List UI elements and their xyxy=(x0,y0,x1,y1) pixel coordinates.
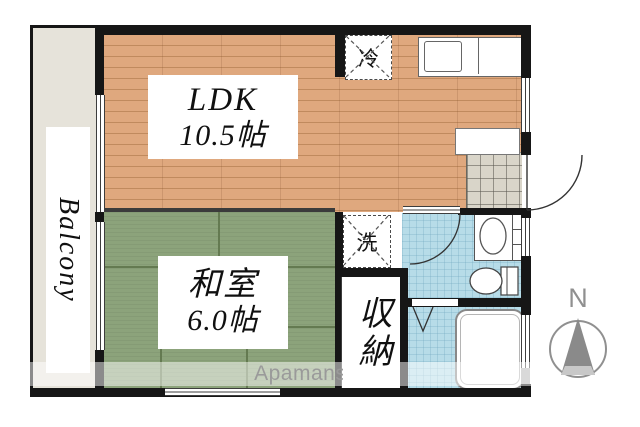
outer-wall-top xyxy=(95,25,531,35)
ldk-label-box: LDK 10.5帖 xyxy=(148,75,298,159)
balcony-label: Balcony xyxy=(52,197,84,303)
outer-wall-bottom xyxy=(30,388,531,397)
wash-basin-cabinet xyxy=(474,214,514,261)
floor-plan: 冷 洗 xyxy=(0,0,640,427)
ldk-room-size: 10.5帖 xyxy=(179,119,267,153)
bathroom-side-window xyxy=(521,315,530,368)
wall-left-seg xyxy=(95,212,104,222)
kitchen-sink xyxy=(424,41,462,72)
washitsu-bottom-window xyxy=(165,388,280,396)
balcony-window-ldk xyxy=(96,95,105,212)
shoe-cabinet xyxy=(455,128,520,155)
balcony-outer-wall-left xyxy=(30,25,33,391)
refrigerator-space: 冷 xyxy=(345,35,392,80)
kitchen-counter-divider xyxy=(478,38,479,74)
balcony-outer-wall-top xyxy=(30,25,98,28)
washitsu-room-size: 6.0帖 xyxy=(187,304,259,338)
refrigerator-label: 冷 xyxy=(358,43,379,73)
wall-right-seg xyxy=(521,208,531,218)
compass-needle-icon xyxy=(561,318,595,375)
storage-label-wrap: 収納 xyxy=(343,277,400,388)
bath-door-opening xyxy=(412,299,458,306)
washroom-side-window xyxy=(521,218,530,256)
ldk-room-name: LDK xyxy=(188,82,258,119)
wall-left-seg xyxy=(95,25,104,95)
washroom-top-wall xyxy=(458,208,521,215)
kitchen-side-window xyxy=(521,78,530,132)
washitsu-room-name: 和室 xyxy=(188,267,258,304)
wall-right-seg xyxy=(521,256,531,315)
compass-circle-icon xyxy=(550,321,606,377)
wall-right-seg xyxy=(521,132,531,155)
refrigerator-niche-wall xyxy=(335,35,345,77)
washitsu-label-box: 和室 6.0帖 xyxy=(158,256,288,349)
balcony-label-box: Balcony xyxy=(46,127,90,373)
washroom-door-opening xyxy=(403,206,460,214)
ldk-washitsu-divider xyxy=(104,208,335,212)
storage-label: 収納 xyxy=(347,295,396,371)
north-compass: N xyxy=(550,283,606,377)
storage-top-wall xyxy=(335,268,408,277)
watermark-band: Apamanshop xyxy=(30,362,531,386)
entrance-door-swing-icon xyxy=(527,155,582,210)
entrance-genkan-floor xyxy=(466,152,522,210)
washer-label: 洗 xyxy=(357,227,378,257)
balcony-window-washitsu xyxy=(96,222,105,350)
wall-right-seg xyxy=(521,25,531,78)
washer-space: 洗 xyxy=(343,215,391,268)
compass-north-label: N xyxy=(568,283,588,313)
compass-needle-base-icon xyxy=(561,366,595,375)
